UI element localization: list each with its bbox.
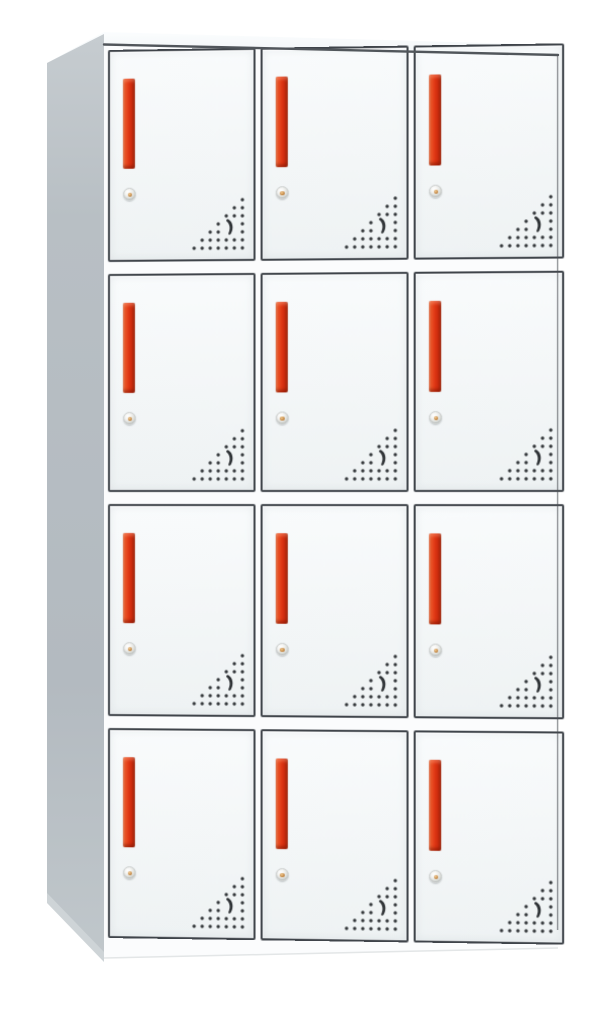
vent-hole — [216, 917, 219, 920]
locker-door-4 — [108, 273, 255, 492]
vent-hole — [500, 704, 503, 707]
vent-hole — [232, 885, 235, 888]
door-lock-icon — [123, 188, 136, 201]
vent-crescent-slot — [379, 676, 385, 692]
vent-hole — [394, 679, 397, 682]
vent-hole — [549, 236, 552, 239]
vent-hole — [394, 469, 397, 472]
vent-hole — [240, 445, 243, 448]
vent-hole — [549, 688, 552, 691]
vent-hole — [524, 244, 527, 247]
vent-hole — [541, 921, 544, 924]
vent-hole — [394, 477, 397, 480]
vent-hole — [353, 927, 356, 930]
vent-hole — [386, 469, 389, 472]
vent-hole — [200, 702, 203, 705]
vent-crescent-slot — [226, 450, 232, 465]
vent-hole — [224, 893, 227, 896]
vent-hole — [370, 687, 373, 690]
vent-holes — [192, 654, 244, 706]
door-handle-icon — [275, 302, 287, 393]
vent-holes-pattern — [190, 874, 246, 931]
vent-hole — [361, 919, 364, 922]
vent-hole — [524, 913, 527, 916]
vent-hole — [216, 901, 219, 904]
vent-hole — [549, 244, 552, 247]
vent-hole — [541, 469, 544, 472]
vent-hole — [216, 678, 219, 681]
vent-hole — [541, 889, 544, 892]
vent-hole — [378, 919, 381, 922]
vent-hole — [524, 680, 527, 683]
vent-hole — [524, 905, 527, 908]
vent-hole — [541, 477, 544, 480]
vent-hole — [516, 461, 519, 464]
vent-hole — [353, 245, 356, 248]
vent-hole — [394, 245, 397, 248]
vent-hole — [516, 244, 519, 247]
vent-hole — [533, 672, 536, 675]
vent-hole — [216, 222, 219, 225]
vent-hole — [216, 694, 219, 697]
vent-hole — [216, 230, 219, 233]
vent-hole — [345, 477, 348, 480]
vent-hole — [361, 703, 364, 706]
vent-hole — [508, 696, 511, 699]
door-handle-icon — [275, 533, 287, 624]
vent-hole — [524, 688, 527, 691]
vent-hole — [549, 881, 552, 884]
vent-holes — [192, 198, 244, 250]
vent-hole — [500, 244, 503, 247]
vent-hole — [232, 437, 235, 440]
vent-hole — [378, 213, 381, 216]
vent-hole — [240, 238, 243, 241]
vent-hole — [240, 246, 243, 249]
vent-hole — [370, 237, 373, 240]
vent-hole — [232, 246, 235, 249]
vent-crescent-slot — [379, 900, 385, 916]
vent-hole — [386, 671, 389, 674]
vent-hole — [240, 877, 243, 880]
vent-holes-pattern — [343, 876, 400, 933]
cabinet-base-edge-line — [104, 948, 558, 958]
vent-hole — [394, 879, 397, 882]
vent-hole — [394, 237, 397, 240]
cabinet-side-bottom-edge — [47, 893, 104, 962]
vent-hole — [240, 678, 243, 681]
vent-hole — [549, 680, 552, 683]
vent-hole — [508, 921, 511, 924]
vent-hole — [232, 662, 235, 665]
vent-hole — [549, 696, 552, 699]
vent-hole — [516, 688, 519, 691]
keyhole-icon — [434, 416, 439, 421]
locker-door-7 — [108, 504, 255, 717]
vent-hole — [549, 461, 552, 464]
vent-hole — [240, 662, 243, 665]
keyhole-icon — [434, 648, 439, 653]
vent-hole — [232, 702, 235, 705]
vent-hole — [541, 929, 544, 932]
vent-hole — [524, 929, 527, 932]
vent-hole — [378, 245, 381, 248]
vent-hole — [541, 672, 544, 675]
vent-hole — [240, 694, 243, 697]
vent-hole — [549, 913, 552, 916]
vent-hole — [240, 885, 243, 888]
vent-hole — [549, 469, 552, 472]
vent-hole — [378, 237, 381, 240]
vent-hole — [394, 221, 397, 224]
vent-crescent-slot — [534, 216, 541, 232]
vent-hole — [386, 445, 389, 448]
vent-hole — [541, 244, 544, 247]
vent-holes-pattern — [343, 652, 400, 709]
vent-hole — [370, 461, 373, 464]
vent-hole — [361, 477, 364, 480]
vent-hole — [378, 703, 381, 706]
vent-hole — [394, 703, 397, 706]
vent-hole — [549, 889, 552, 892]
vent-hole — [200, 694, 203, 697]
vent-hole — [378, 445, 381, 448]
vent-hole — [516, 921, 519, 924]
vent-hole — [224, 477, 227, 480]
vent-hole — [394, 887, 397, 890]
keyhole-icon — [127, 647, 132, 652]
locker-door-12 — [414, 730, 564, 944]
locker-door-10 — [108, 728, 255, 940]
vent-holes — [345, 196, 397, 248]
vent-hole — [524, 228, 527, 231]
vent-hole — [394, 445, 397, 448]
vent-hole — [240, 654, 243, 657]
vent-holes — [500, 655, 553, 707]
locker-door-6 — [414, 271, 564, 492]
vent-hole — [224, 246, 227, 249]
vent-hole — [232, 206, 235, 209]
vent-hole — [192, 702, 195, 705]
vent-hole — [500, 929, 503, 932]
vent-hole — [232, 469, 235, 472]
vent-hole — [394, 213, 397, 216]
vent-hole — [240, 925, 243, 928]
vent-hole — [394, 196, 397, 199]
vent-hole — [224, 917, 227, 920]
vent-hole — [549, 930, 552, 933]
vent-hole — [216, 686, 219, 689]
vent-hole — [386, 237, 389, 240]
vent-hole — [516, 696, 519, 699]
vent-hole — [240, 702, 243, 705]
vent-hole — [240, 670, 243, 673]
locker-door-5 — [260, 272, 409, 492]
vent-hole — [508, 236, 511, 239]
vent-hole — [240, 230, 243, 233]
vent-hole — [541, 704, 544, 707]
vent-hole — [378, 477, 381, 480]
vent-hole — [508, 244, 511, 247]
vent-hole — [224, 694, 227, 697]
vent-hole — [508, 929, 511, 932]
vent-crescent-slot — [534, 902, 541, 918]
vent-hole — [361, 229, 364, 232]
door-lock-icon — [429, 411, 442, 424]
vent-hole — [353, 237, 356, 240]
vent-hole — [394, 205, 397, 208]
vent-crescent-slot — [534, 450, 541, 466]
vent-hole — [394, 229, 397, 232]
vent-hole — [516, 929, 519, 932]
vent-hole — [549, 219, 552, 222]
locker-door-8 — [260, 504, 409, 718]
vent-hole — [524, 704, 527, 707]
vent-hole — [533, 929, 536, 932]
vent-hole — [361, 461, 364, 464]
vent-hole — [353, 695, 356, 698]
vent-hole — [524, 453, 527, 456]
vent-hole — [208, 469, 211, 472]
door-lock-icon — [275, 186, 288, 199]
vent-hole — [192, 925, 195, 928]
vent-hole — [549, 656, 552, 659]
vent-hole — [370, 245, 373, 248]
locker-door-2 — [260, 46, 409, 261]
vent-hole — [541, 203, 544, 206]
vent-hole — [533, 921, 536, 924]
vent-hole — [500, 477, 503, 480]
vent-holes-pattern — [497, 426, 554, 483]
door-lock-icon — [275, 643, 288, 656]
vent-holes-pattern — [497, 193, 554, 250]
vent-hole — [208, 694, 211, 697]
vent-hole — [200, 477, 203, 480]
vent-hole — [224, 702, 227, 705]
door-handle-icon — [275, 758, 287, 849]
vent-hole — [386, 205, 389, 208]
vent-hole — [361, 245, 364, 248]
vent-hole — [386, 245, 389, 248]
vent-hole — [541, 436, 544, 439]
door-lock-icon — [429, 644, 442, 657]
vent-hole — [378, 927, 381, 930]
vent-hole — [370, 911, 373, 914]
vent-hole — [240, 198, 243, 201]
vent-hole — [216, 477, 219, 480]
vent-hole — [353, 477, 356, 480]
vent-hole — [394, 927, 397, 930]
vent-hole — [378, 695, 381, 698]
vent-hole — [240, 901, 243, 904]
vent-hole — [345, 703, 348, 706]
door-handle-icon — [429, 74, 441, 165]
vent-hole — [361, 695, 364, 698]
vent-hole — [394, 903, 397, 906]
vent-hole — [549, 436, 552, 439]
door-handle-icon — [123, 533, 135, 623]
vent-hole — [508, 469, 511, 472]
door-handle-icon — [123, 79, 135, 169]
vent-hole — [386, 663, 389, 666]
vent-hole — [240, 429, 243, 432]
vent-hole — [200, 917, 203, 920]
vent-hole — [516, 913, 519, 916]
vent-hole — [216, 925, 219, 928]
keyhole-icon — [127, 416, 132, 421]
vent-hole — [516, 228, 519, 231]
vent-hole — [353, 703, 356, 706]
vent-hole — [533, 477, 536, 480]
vent-hole — [549, 203, 552, 206]
vent-hole — [232, 694, 235, 697]
vent-crescent-slot — [534, 677, 541, 693]
vent-holes — [500, 428, 553, 480]
vent-crescent-slot — [226, 219, 232, 235]
vent-hole — [208, 246, 211, 249]
keyhole-icon — [434, 875, 439, 880]
vent-hole — [370, 695, 373, 698]
vent-holes-pattern — [343, 194, 400, 251]
vent-hole — [394, 919, 397, 922]
vent-hole — [240, 453, 243, 456]
vent-hole — [394, 671, 397, 674]
door-lock-icon — [429, 870, 442, 883]
vent-hole — [394, 453, 397, 456]
vent-hole — [394, 687, 397, 690]
vent-hole — [232, 893, 235, 896]
door-handle-icon — [429, 301, 441, 392]
vent-hole — [386, 477, 389, 480]
vent-hole — [232, 477, 235, 480]
vent-hole — [516, 704, 519, 707]
vent-hole — [549, 921, 552, 924]
vent-hole — [216, 238, 219, 241]
vent-holes — [345, 655, 397, 707]
vent-hole — [240, 477, 243, 480]
vent-holes-pattern — [497, 653, 554, 710]
vent-hole — [216, 469, 219, 472]
vent-hole — [549, 664, 552, 667]
vent-hole — [370, 469, 373, 472]
vent-hole — [549, 211, 552, 214]
vent-hole — [524, 236, 527, 239]
vent-hole — [541, 236, 544, 239]
vent-hole — [200, 469, 203, 472]
vent-hole — [345, 927, 348, 930]
vent-hole — [240, 206, 243, 209]
vent-hole — [386, 703, 389, 706]
keyhole-icon — [280, 647, 285, 652]
vent-hole — [394, 429, 397, 432]
vent-holes-pattern — [190, 196, 246, 253]
vent-hole — [216, 246, 219, 249]
vent-hole — [216, 909, 219, 912]
locker-door-9 — [414, 504, 564, 719]
vent-hole — [224, 445, 227, 448]
vent-hole — [541, 664, 544, 667]
vent-hole — [533, 236, 536, 239]
vent-hole — [516, 236, 519, 239]
door-lock-icon — [275, 868, 288, 881]
vent-hole — [192, 477, 195, 480]
vent-hole — [208, 238, 211, 241]
vent-holes — [345, 878, 397, 931]
vent-hole — [240, 437, 243, 440]
vent-hole — [394, 461, 397, 464]
vent-hole — [386, 895, 389, 898]
vent-hole — [549, 704, 552, 707]
keyhole-icon — [127, 871, 132, 876]
vent-hole — [541, 211, 544, 214]
vent-hole — [232, 214, 235, 217]
vent-hole — [370, 919, 373, 922]
vent-hole — [240, 893, 243, 896]
keyhole-icon — [280, 416, 285, 421]
door-handle-icon — [429, 533, 441, 624]
vent-hole — [378, 671, 381, 674]
vent-hole — [208, 461, 211, 464]
vent-hole — [533, 704, 536, 707]
vent-hole — [224, 238, 227, 241]
vent-hole — [240, 469, 243, 472]
vent-holes — [345, 429, 397, 481]
locker-cabinet-photo — [0, 0, 605, 1009]
vent-hole — [549, 477, 552, 480]
door-handle-icon — [123, 757, 135, 847]
keyhole-icon — [127, 192, 132, 197]
vent-hole — [200, 238, 203, 241]
vent-hole — [232, 670, 235, 673]
vent-holes-pattern — [190, 651, 246, 708]
vent-hole — [370, 903, 373, 906]
vent-hole — [361, 237, 364, 240]
vent-hole — [240, 461, 243, 464]
door-lock-icon — [123, 642, 136, 655]
vent-hole — [224, 214, 227, 217]
vent-hole — [394, 911, 397, 914]
vent-crescent-slot — [379, 450, 385, 466]
vent-hole — [208, 917, 211, 920]
vent-crescent-slot — [226, 898, 232, 914]
door-lock-icon — [429, 185, 442, 198]
vent-hole — [541, 696, 544, 699]
vent-hole — [370, 229, 373, 232]
locker-door-11 — [260, 729, 409, 942]
vent-holes-pattern — [497, 878, 554, 936]
keyhole-icon — [280, 191, 285, 196]
vent-hole — [232, 925, 235, 928]
vent-hole — [216, 461, 219, 464]
vent-hole — [370, 703, 373, 706]
door-handle-icon — [429, 760, 441, 851]
vent-hole — [533, 244, 536, 247]
vent-hole — [208, 925, 211, 928]
vent-hole — [361, 687, 364, 690]
vent-hole — [345, 245, 348, 248]
keyhole-icon — [280, 873, 285, 878]
vent-hole — [549, 227, 552, 230]
vent-hole — [524, 921, 527, 924]
door-lock-icon — [275, 412, 288, 425]
vent-hole — [533, 445, 536, 448]
vent-hole — [533, 696, 536, 699]
vent-hole — [386, 927, 389, 930]
vent-hole — [192, 247, 195, 250]
vent-holes — [192, 876, 244, 928]
vent-hole — [549, 453, 552, 456]
vent-hole — [394, 663, 397, 666]
